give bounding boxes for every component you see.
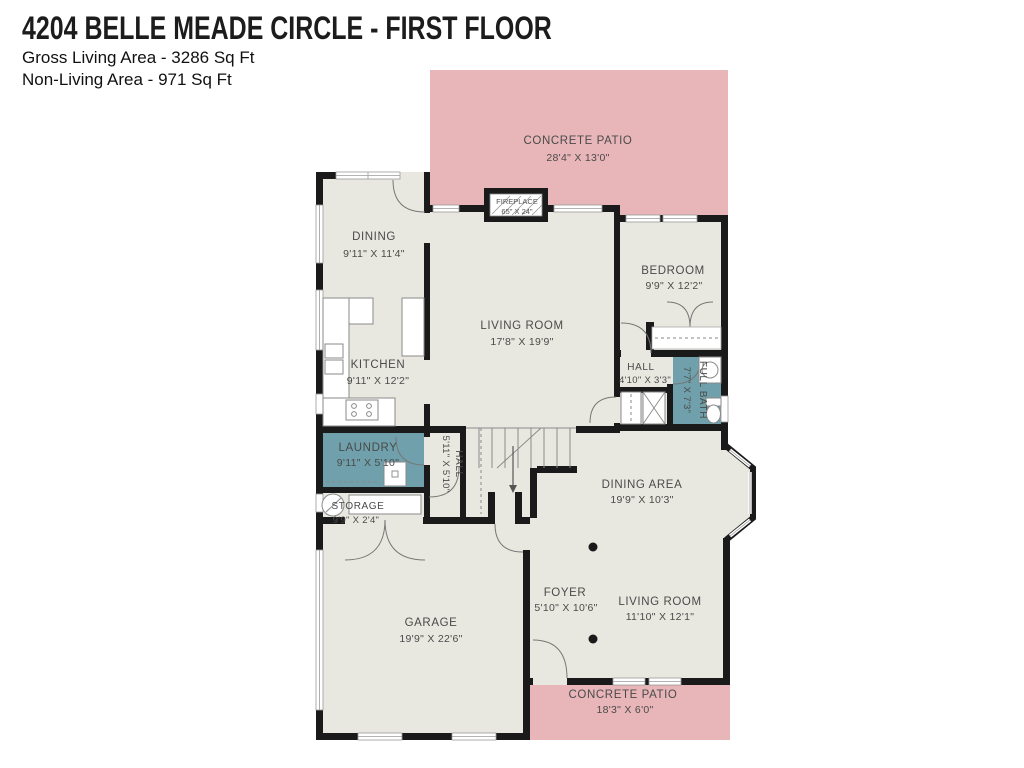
patio-bottom-label: CONCRETE PATIO: [569, 689, 678, 701]
bedroom-closet: [652, 327, 721, 349]
patio-top-label: CONCRETE PATIO: [524, 135, 633, 147]
dining-area-dims: 19'9" X 10'3": [610, 494, 673, 506]
hall-label: HALL: [627, 362, 654, 373]
column-dot: [589, 543, 598, 552]
floorplan-page: 4204 BELLE MEADE CIRCLE - FIRST FLOOR Gr…: [0, 0, 1024, 768]
laundry-label: LAUNDRY: [339, 442, 398, 454]
laundry-dims: 9'11" X 5'10": [337, 457, 399, 469]
patio-top-dims: 28'4" X 13'0": [546, 152, 609, 164]
garage-dims: 19'9" X 22'6": [399, 633, 462, 645]
living-room-2-label: LIVING ROOM: [618, 596, 701, 608]
cooktop: [346, 400, 378, 420]
column-dot: [589, 635, 598, 644]
hall-center-label: HALL: [453, 450, 464, 477]
kitchen-label: KITCHEN: [351, 359, 406, 371]
kitchen-sink: [325, 344, 343, 358]
patio-bottom-dims: 18'3" X 6'0": [596, 704, 653, 716]
living-room-2-dims: 11'10" X 12'1": [626, 611, 695, 623]
full-bath-dims: 7'7" X 7'3": [681, 367, 692, 413]
floorplan-drawing: CONCRETE PATIO 28'4" X 13'0" FIREPLACE 6…: [0, 0, 1024, 768]
living-room-label: LIVING ROOM: [480, 320, 563, 332]
fireplace-dims: 65" X 24": [501, 207, 533, 216]
bedroom-label: BEDROOM: [641, 265, 705, 277]
fireplace-label: FIREPLACE: [496, 197, 538, 206]
hall-dims: 4'10" X 3'3": [619, 375, 671, 386]
dining-dims: 9'11" X 11'4": [343, 248, 405, 260]
full-bath-label: FULL BATH: [697, 361, 708, 419]
storage-dims: 9'9" X 2'4": [333, 515, 379, 526]
dining-label: DINING: [352, 231, 396, 243]
foyer-label: FOYER: [544, 587, 587, 599]
foyer-dims: 5'10" X 10'6": [534, 602, 597, 614]
bedroom-dims: 9'9" X 12'2": [645, 280, 702, 292]
dining-area-label: DINING AREA: [602, 479, 683, 491]
refrigerator: [402, 298, 424, 356]
storage-label: STORAGE: [332, 501, 385, 512]
kitchen-dims: 9'11" X 12'2": [347, 375, 409, 387]
hall-center-dims: 5'11" X 5'10": [440, 436, 451, 493]
garage-label: GARAGE: [405, 617, 458, 629]
living-room-dims: 17'8" X 19'9": [490, 336, 553, 348]
hall-closets: [621, 392, 665, 424]
